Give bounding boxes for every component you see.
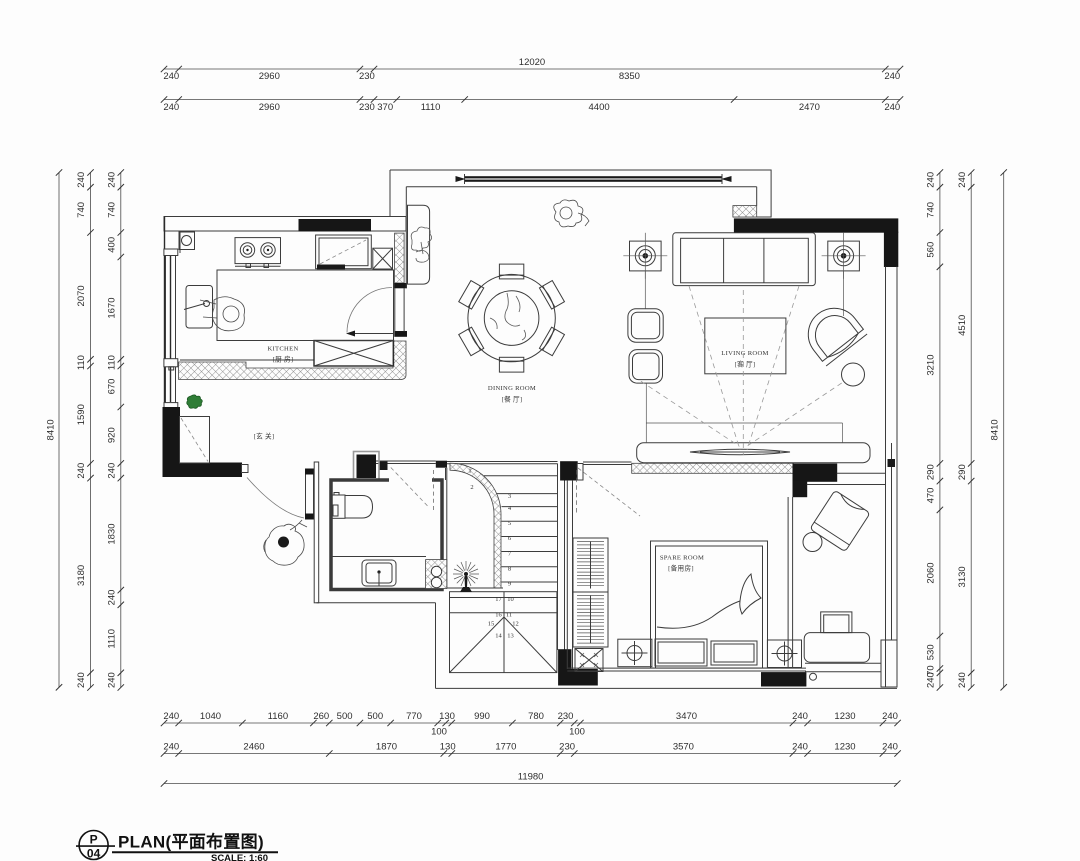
svg-text:100: 100	[431, 727, 447, 738]
svg-text:8410: 8410	[990, 419, 1001, 440]
svg-text:1870: 1870	[376, 742, 397, 753]
svg-text:3: 3	[508, 493, 511, 500]
svg-text:1830: 1830	[107, 524, 118, 545]
svg-text:260: 260	[313, 711, 329, 722]
svg-text:240: 240	[926, 672, 937, 688]
svg-text:290: 290	[926, 464, 937, 480]
svg-text:9: 9	[508, 581, 511, 588]
svg-text:290: 290	[957, 464, 968, 480]
svg-text:KITCHEN: KITCHEN	[267, 346, 298, 353]
svg-text:130: 130	[439, 711, 455, 722]
svg-text:16: 16	[495, 612, 502, 619]
svg-text:1770: 1770	[495, 742, 516, 753]
svg-text:240: 240	[107, 590, 118, 606]
svg-text:3570: 3570	[673, 742, 694, 753]
svg-text:SCALE: 1:60: SCALE: 1:60	[211, 853, 268, 861]
svg-text:2960: 2960	[259, 102, 280, 113]
svg-text:240: 240	[76, 463, 87, 479]
svg-text:PLAN(平面布置图): PLAN(平面布置图)	[118, 832, 264, 852]
svg-text:240: 240	[792, 742, 808, 753]
svg-text:240: 240	[957, 172, 968, 188]
svg-text:990: 990	[474, 711, 490, 722]
svg-text:2960: 2960	[259, 71, 280, 82]
svg-text:1110: 1110	[107, 629, 118, 649]
svg-text:240: 240	[884, 102, 900, 113]
svg-text:[厨 房]: [厨 房]	[273, 355, 294, 364]
svg-text:[备用房]: [备用房]	[668, 564, 694, 573]
svg-text:110: 110	[76, 355, 87, 370]
svg-text:5: 5	[508, 520, 511, 527]
svg-text:3180: 3180	[76, 565, 87, 586]
svg-text:2: 2	[470, 484, 473, 491]
svg-text:1670: 1670	[107, 298, 118, 319]
svg-text:1230: 1230	[834, 742, 855, 753]
svg-text:1230: 1230	[834, 711, 855, 722]
svg-text:500: 500	[337, 711, 353, 722]
svg-text:230: 230	[359, 102, 375, 113]
svg-text:4400: 4400	[589, 102, 610, 113]
svg-text:8: 8	[508, 566, 511, 573]
svg-text:670: 670	[107, 379, 118, 395]
svg-text:8410: 8410	[46, 419, 57, 440]
svg-text:230: 230	[559, 742, 575, 753]
svg-text:240: 240	[792, 711, 808, 722]
svg-text:560: 560	[926, 242, 937, 258]
svg-text:P: P	[90, 833, 98, 847]
svg-text:240: 240	[163, 71, 179, 82]
svg-text:240: 240	[76, 672, 87, 688]
svg-text:1160: 1160	[268, 711, 288, 722]
svg-text:240: 240	[163, 742, 179, 753]
svg-text:740: 740	[107, 202, 118, 218]
svg-text:240: 240	[957, 672, 968, 688]
svg-text:DINING ROOM: DINING ROOM	[488, 385, 536, 392]
svg-text:240: 240	[76, 172, 87, 188]
svg-text:LIVING ROOM: LIVING ROOM	[721, 350, 768, 357]
svg-text:240: 240	[926, 172, 937, 188]
svg-text:740: 740	[926, 202, 937, 218]
svg-text:SPARE ROOM: SPARE ROOM	[660, 555, 704, 562]
svg-text:[玄 关]: [玄 关]	[254, 432, 275, 441]
svg-text:470: 470	[926, 488, 937, 504]
svg-text:2070: 2070	[76, 285, 87, 306]
svg-text:14: 14	[495, 633, 502, 640]
svg-text:770: 770	[406, 711, 422, 722]
svg-text:370: 370	[377, 102, 393, 113]
svg-text:500: 500	[367, 711, 383, 722]
svg-text:230: 230	[558, 711, 574, 722]
svg-text:13: 13	[507, 633, 514, 640]
svg-text:11: 11	[506, 612, 512, 619]
svg-text:12: 12	[512, 621, 519, 628]
svg-text:240: 240	[163, 102, 179, 113]
svg-text:2470: 2470	[799, 102, 820, 113]
svg-text:3130: 3130	[957, 566, 968, 587]
svg-text:110: 110	[107, 355, 118, 370]
svg-text:230: 230	[359, 71, 375, 82]
svg-text:240: 240	[163, 711, 179, 722]
svg-text:920: 920	[107, 427, 118, 443]
svg-text:1110: 1110	[421, 102, 441, 113]
svg-text:240: 240	[107, 172, 118, 188]
svg-text:3210: 3210	[926, 355, 937, 376]
svg-text:100: 100	[569, 727, 585, 738]
svg-text:12020: 12020	[519, 57, 545, 68]
svg-text:17: 17	[495, 596, 502, 603]
svg-text:740: 740	[76, 202, 87, 218]
svg-text:1040: 1040	[200, 711, 221, 722]
svg-text:04: 04	[87, 847, 101, 861]
svg-text:780: 780	[528, 711, 544, 722]
svg-text:8350: 8350	[619, 71, 640, 82]
svg-text:530: 530	[926, 644, 937, 660]
svg-text:240: 240	[107, 672, 118, 688]
svg-text:[餐 厅]: [餐 厅]	[502, 395, 523, 404]
svg-text:1590: 1590	[76, 404, 87, 425]
svg-text:15: 15	[488, 621, 495, 628]
svg-text:400: 400	[107, 237, 118, 253]
svg-text:240: 240	[882, 742, 898, 753]
svg-text:240: 240	[884, 71, 900, 82]
svg-text:[客 厅]: [客 厅]	[735, 360, 756, 369]
svg-text:11980: 11980	[518, 772, 544, 783]
svg-text:2060: 2060	[926, 562, 937, 583]
svg-text:240: 240	[882, 711, 898, 722]
svg-text:3470: 3470	[676, 711, 697, 722]
svg-text:10: 10	[507, 596, 514, 603]
svg-text:2460: 2460	[243, 742, 264, 753]
svg-text:1: 1	[468, 468, 471, 475]
svg-text:4510: 4510	[957, 315, 968, 336]
svg-text:130: 130	[440, 742, 456, 753]
svg-text:240: 240	[107, 463, 118, 479]
